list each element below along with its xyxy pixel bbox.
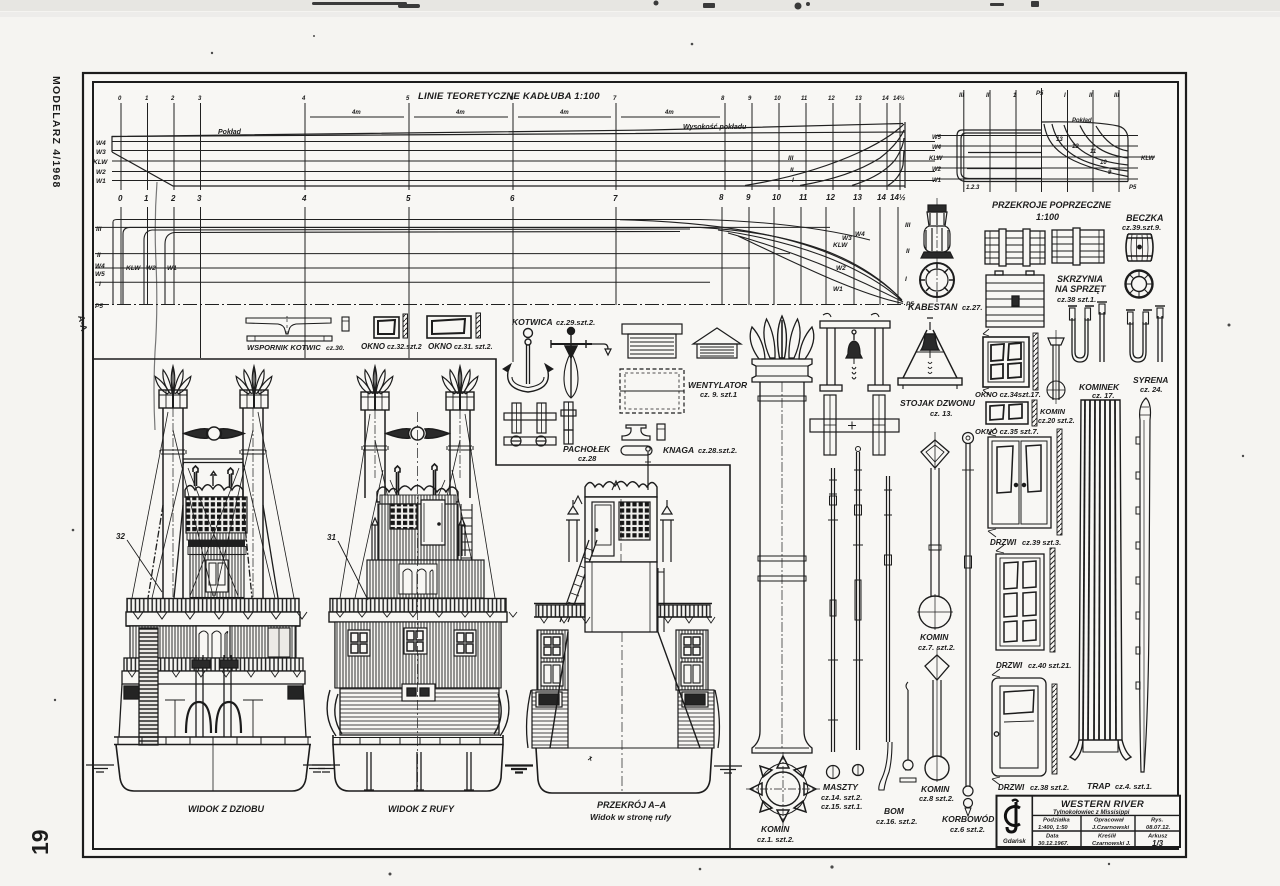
svg-text:W3: W3 xyxy=(842,235,852,242)
svg-text:6: 6 xyxy=(510,194,515,203)
svg-text:14: 14 xyxy=(877,193,886,202)
svg-text:SKRZYNIA: SKRZYNIA xyxy=(1057,274,1103,284)
svg-text:cz.4. szt.1.: cz.4. szt.1. xyxy=(1115,782,1152,791)
svg-text:WIDOK Z DZIOBU: WIDOK Z DZIOBU xyxy=(188,804,264,814)
svg-text:10: 10 xyxy=(774,96,781,102)
svg-text:5: 5 xyxy=(406,194,411,203)
svg-text:KOMIN: KOMIN xyxy=(761,824,790,834)
svg-text:W1: W1 xyxy=(167,265,177,272)
svg-text:cz. 13.: cz. 13. xyxy=(930,409,953,418)
svg-text:1.2.3: 1.2.3 xyxy=(966,185,980,191)
svg-text:III: III xyxy=(1114,93,1119,99)
svg-text:cz.28.szt.2.: cz.28.szt.2. xyxy=(698,446,737,455)
svg-text:Tylnokołowiec z Missisippi: Tylnokołowiec z Missisippi xyxy=(1053,810,1130,816)
svg-text:Opracował: Opracował xyxy=(1094,818,1124,824)
svg-text:I: I xyxy=(905,276,907,283)
svg-text:KLW: KLW xyxy=(929,156,944,162)
svg-text:Czarnowski J.: Czarnowski J. xyxy=(1092,841,1131,847)
svg-text:2: 2 xyxy=(170,96,175,102)
svg-text:KOTWICA: KOTWICA xyxy=(512,317,553,327)
svg-text:KLW: KLW xyxy=(833,242,848,249)
svg-text:14½: 14½ xyxy=(890,193,906,202)
svg-text:cz. 17.: cz. 17. xyxy=(1092,391,1115,400)
svg-text:12: 12 xyxy=(828,96,835,102)
svg-text:13: 13 xyxy=(1056,137,1063,143)
svg-text:KLW: KLW xyxy=(93,159,108,166)
svg-text:OKNO cz.35 szt.7.: OKNO cz.35 szt.7. xyxy=(975,427,1039,436)
svg-text:Wysokość pokładu: Wysokość pokładu xyxy=(683,124,747,131)
svg-text:WSPORNIK KOTWIC: WSPORNIK KOTWIC xyxy=(247,343,321,352)
svg-text:DRZWI: DRZWI xyxy=(998,783,1025,792)
svg-text:cz. 9. szt.1: cz. 9. szt.1 xyxy=(700,390,737,399)
svg-text:1/3: 1/3 xyxy=(1152,839,1164,848)
svg-text:cz.16. szt.2.: cz.16. szt.2. xyxy=(876,817,917,826)
svg-text:cz.8 szt.2.: cz.8 szt.2. xyxy=(919,794,954,803)
svg-text:12: 12 xyxy=(826,193,835,202)
svg-text:cz.30.: cz.30. xyxy=(326,345,345,352)
svg-text:W2: W2 xyxy=(932,167,942,173)
svg-text:P5: P5 xyxy=(1129,185,1137,191)
svg-text:KOMIN: KOMIN xyxy=(1040,407,1066,416)
svg-text:cz.40 szt.21.: cz.40 szt.21. xyxy=(1028,661,1071,670)
svg-text:II: II xyxy=(906,248,910,255)
svg-text:13: 13 xyxy=(855,96,862,102)
svg-text:cz.39.szt.9.: cz.39.szt.9. xyxy=(1122,223,1161,232)
svg-text:MASZTY: MASZTY xyxy=(823,782,859,792)
svg-text:III: III xyxy=(959,93,964,99)
svg-text:19: 19 xyxy=(27,829,53,855)
svg-text:II: II xyxy=(1089,93,1093,99)
svg-text:J.Czarnowski: J.Czarnowski xyxy=(1092,825,1129,831)
svg-text:08.07.12.: 08.07.12. xyxy=(1146,825,1171,831)
svg-text:cz.15. szt.1.: cz.15. szt.1. xyxy=(821,802,862,811)
svg-text:PRZEKROJE POPRZECZNE: PRZEKROJE POPRZECZNE xyxy=(992,200,1112,210)
svg-text:Pokład: Pokład xyxy=(218,129,242,136)
svg-text:II: II xyxy=(986,93,990,99)
svg-text:11: 11 xyxy=(799,193,808,202)
svg-text:4: 4 xyxy=(301,96,306,102)
svg-text:14: 14 xyxy=(882,96,889,102)
svg-text:Gdańsk: Gdańsk xyxy=(1003,838,1026,845)
svg-text:KABESTAN: KABESTAN xyxy=(908,302,958,312)
svg-text:I: I xyxy=(99,281,101,288)
svg-text:TRAP: TRAP xyxy=(1087,781,1110,791)
svg-text:cz.1. szt.2.: cz.1. szt.2. xyxy=(757,835,794,844)
svg-text:PACHOŁEK: PACHOŁEK xyxy=(563,444,611,454)
svg-text:cz.27.: cz.27. xyxy=(962,303,982,312)
svg-text:MODELARZ 4/1968: MODELARZ 4/1968 xyxy=(50,76,62,189)
svg-text:1: 1 xyxy=(144,194,149,203)
svg-text:Rys.: Rys. xyxy=(1151,818,1164,824)
svg-text:10: 10 xyxy=(1100,160,1107,166)
svg-text:KNAGA: KNAGA xyxy=(663,445,694,455)
svg-text:I: I xyxy=(792,177,794,184)
svg-text:BECZKA: BECZKA xyxy=(1126,213,1164,223)
svg-text:III: III xyxy=(905,222,911,229)
svg-text:BOM: BOM xyxy=(884,806,905,816)
svg-text:3: 3 xyxy=(197,194,202,203)
svg-text:W4: W4 xyxy=(96,140,106,147)
svg-text:31: 31 xyxy=(327,533,336,542)
svg-text:4m: 4m xyxy=(455,110,465,116)
svg-text:KORBOWÓD: KORBOWÓD xyxy=(942,813,994,824)
svg-text:SYRENA: SYRENA xyxy=(1133,375,1168,385)
svg-text:P5: P5 xyxy=(95,303,103,310)
svg-text:KOMIN: KOMIN xyxy=(920,632,949,642)
svg-text:II: II xyxy=(790,167,794,174)
svg-text:II: II xyxy=(97,252,101,259)
svg-text:W2: W2 xyxy=(146,265,156,272)
svg-text:Kreślił: Kreślił xyxy=(1098,834,1116,840)
svg-text:30.12.1967.: 30.12.1967. xyxy=(1038,841,1069,847)
svg-text:8: 8 xyxy=(719,193,724,202)
svg-text:4: 4 xyxy=(301,194,307,203)
svg-text:cz.29.szt.2.: cz.29.szt.2. xyxy=(556,318,595,327)
svg-text:cz.31. szt.2.: cz.31. szt.2. xyxy=(454,344,493,351)
svg-text:WENTYLATOR: WENTYLATOR xyxy=(688,380,748,390)
svg-text:4m: 4m xyxy=(664,110,674,116)
svg-text:13: 13 xyxy=(853,193,862,202)
svg-text:W2: W2 xyxy=(836,265,846,272)
svg-text:NA SPRZĘT: NA SPRZĘT xyxy=(1055,284,1107,294)
svg-text:cz.28: cz.28 xyxy=(578,454,597,463)
svg-text:W5: W5 xyxy=(932,135,942,141)
svg-text:Data: Data xyxy=(1046,834,1059,840)
svg-text:W1: W1 xyxy=(96,178,106,185)
svg-text:1:400, 1:50: 1:400, 1:50 xyxy=(1038,825,1068,831)
svg-text:W4: W4 xyxy=(95,263,105,270)
svg-text:32: 32 xyxy=(116,532,125,541)
svg-text:9: 9 xyxy=(746,193,751,202)
svg-text:Widok w stronę rufy: Widok w stronę rufy xyxy=(590,812,672,822)
svg-text:4m: 4m xyxy=(351,110,361,116)
svg-text:WIDOK Z RUFY: WIDOK Z RUFY xyxy=(388,804,455,814)
svg-text:11: 11 xyxy=(1090,149,1097,155)
svg-text:DRZWI: DRZWI xyxy=(996,661,1023,670)
svg-text:cz.7. szt.2.: cz.7. szt.2. xyxy=(918,643,955,652)
svg-text:OKNO: OKNO xyxy=(428,342,453,351)
svg-text:cz.39 szt.3.: cz.39 szt.3. xyxy=(1022,538,1061,547)
svg-text:14½: 14½ xyxy=(893,95,905,102)
svg-text:2: 2 xyxy=(170,194,176,203)
svg-text:OKNO cz.34szt.17.: OKNO cz.34szt.17. xyxy=(975,390,1041,399)
svg-text:PRZEKRÓJ A–A: PRZEKRÓJ A–A xyxy=(597,799,666,810)
svg-text:11: 11 xyxy=(801,96,808,102)
svg-text:4m: 4m xyxy=(559,110,569,116)
svg-text:W4: W4 xyxy=(932,145,942,151)
svg-text:W1: W1 xyxy=(833,286,843,293)
svg-text:cz.32.szt.2: cz.32.szt.2 xyxy=(387,344,422,351)
svg-text:KLW: KLW xyxy=(1141,156,1156,162)
svg-text:III: III xyxy=(96,226,102,233)
svg-text:WESTERN RIVER: WESTERN RIVER xyxy=(1061,799,1144,810)
svg-text:W1: W1 xyxy=(932,178,942,184)
svg-text:7: 7 xyxy=(613,194,618,203)
svg-text:W3: W3 xyxy=(96,149,106,156)
svg-text:W2: W2 xyxy=(96,169,106,176)
svg-text:1:100: 1:100 xyxy=(1036,212,1059,222)
svg-text:cz. 24.: cz. 24. xyxy=(1140,385,1163,394)
svg-text:III: III xyxy=(788,155,794,162)
svg-text:cz.14. szt.2.: cz.14. szt.2. xyxy=(821,793,862,802)
svg-text:OKNO: OKNO xyxy=(361,342,386,351)
svg-text:KOMIN: KOMIN xyxy=(921,784,950,794)
svg-text:Pokład: Pokład xyxy=(1072,118,1092,124)
svg-text:10: 10 xyxy=(772,193,781,202)
svg-text:KLW: KLW xyxy=(126,265,141,272)
svg-text:Podziałka: Podziałka xyxy=(1043,818,1071,824)
svg-text:STOJAK DZWONU: STOJAK DZWONU xyxy=(900,398,976,408)
svg-text:cz.20 szt.2.: cz.20 szt.2. xyxy=(1038,418,1075,425)
svg-text:12: 12 xyxy=(1072,144,1079,150)
svg-text:0: 0 xyxy=(118,194,123,203)
svg-text:P5: P5 xyxy=(1036,91,1044,97)
svg-text:W4: W4 xyxy=(855,231,865,238)
svg-text:cz.6 szt.2.: cz.6 szt.2. xyxy=(950,825,985,834)
svg-text:cz.38 szt.1.: cz.38 szt.1. xyxy=(1057,295,1096,304)
svg-text:W5: W5 xyxy=(95,271,105,278)
svg-text:cz.38 szt.2.: cz.38 szt.2. xyxy=(1030,783,1069,792)
